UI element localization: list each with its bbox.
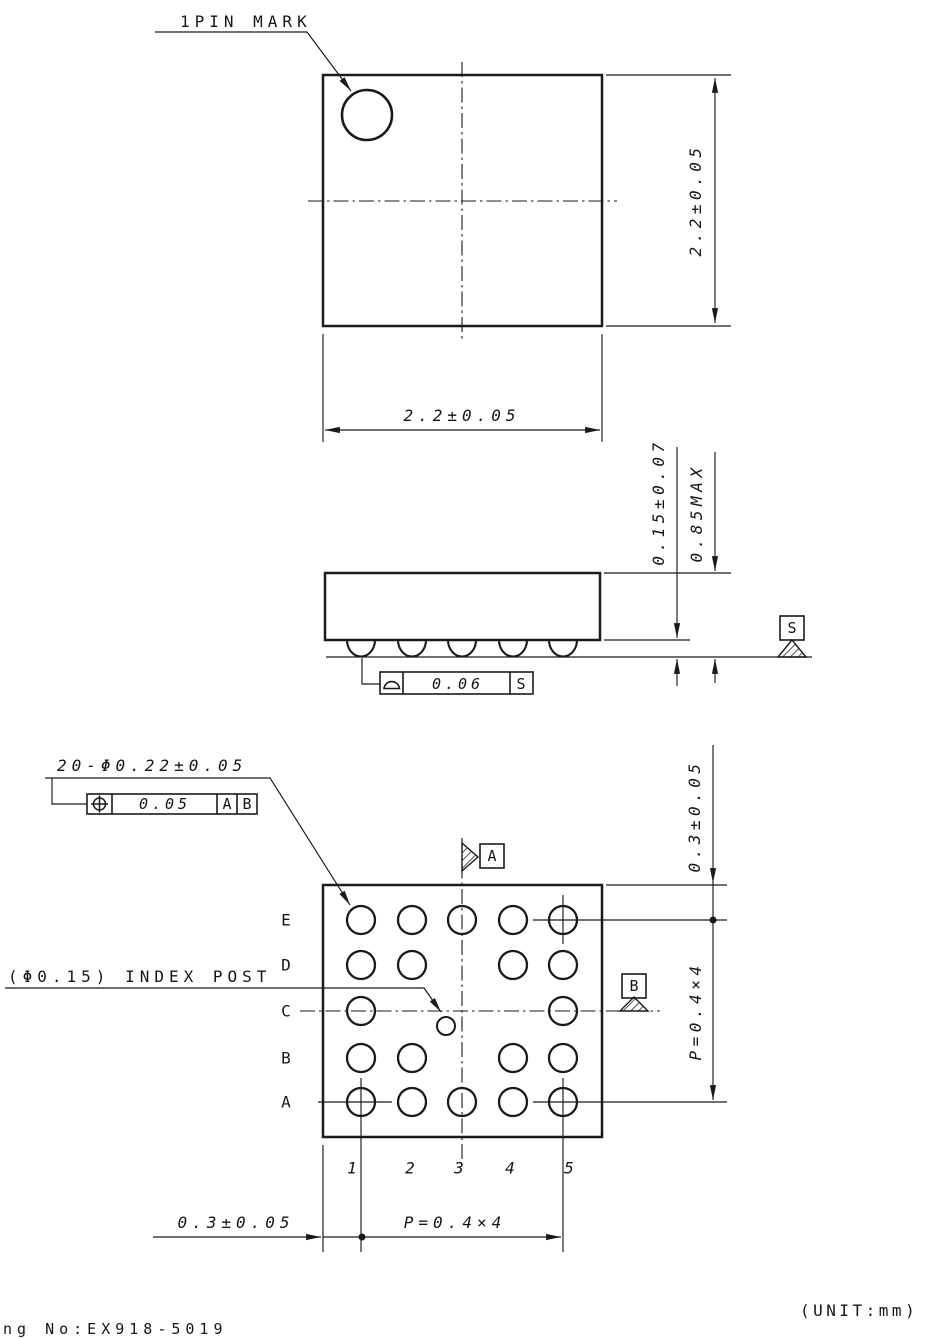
ball-B5 [549,1044,577,1072]
index-post-circle [437,1017,455,1035]
solder-bumps [347,640,577,657]
datum-b-flag: B [620,974,648,1011]
ball-D2 [398,951,426,979]
datum-s-flag: S [778,616,806,657]
unit-note: (UNIT:mm) [800,1301,918,1320]
col-label-1: 1 [347,1159,357,1178]
ball-B1 [347,1044,375,1072]
ball-E4 [499,906,527,934]
coplanarity-fcf: 0.06 S [362,658,533,694]
footer: (UNIT:mm) ng No:EX918-5019 [3,1301,918,1338]
dim-pitch-bottom-text: P=0.4×4 [404,1213,506,1232]
ball-D1 [347,951,375,979]
datum-b-letter: B [629,977,638,995]
dim-standoff-text: 0.15±0.07 [649,438,668,565]
ball-callout-text: 20-Φ0.22±0.05 [57,756,247,775]
top-view: 1PIN MARK 2.2±0.05 2.2±0.05 [155,12,731,442]
dim-max-height: 0.85MAX [687,452,715,683]
pin1-mark-circle [342,90,392,140]
pin-mark-label: 1PIN MARK [180,12,312,31]
row-labels: EDCBA [281,911,291,1112]
col-label-2: 2 [405,1159,415,1178]
row-label-C: C [281,1002,291,1021]
dim-edge-bottom-text: 0.3±0.05 [177,1213,294,1232]
dim-right-side: 0.3±0.05 P=0.4×4 [606,745,727,1100]
profile-of-surface-symbol [384,682,400,689]
ball-callout-leader [45,778,350,905]
datum-a-letter: A [487,847,496,865]
ball-B2 [398,1044,426,1072]
ball-A2 [398,1088,426,1116]
datum-a-flag: A [462,843,504,871]
package-body-side [325,573,600,640]
index-post-label: (Φ0.15) INDEX POST [8,967,271,986]
package-outline-drawing: 1PIN MARK 2.2±0.05 2.2±0.05 0.15±0.07 [0,0,951,1339]
ball-D4 [499,951,527,979]
ball-D5 [549,951,577,979]
dim-max-height-text: 0.85MAX [687,464,706,563]
index-post-callout: (Φ0.15) INDEX POST [5,967,441,1012]
dim-body-width: 2.2±0.05 [323,334,602,442]
dim-bottom: 0.3±0.05 P=0.4×4 [153,1213,561,1241]
ball-A4 [499,1088,527,1116]
coplanarity-datum: S [516,675,525,693]
position-value: 0.05 [139,795,191,813]
dim-body-height-text: 2.2±0.05 [686,143,705,256]
col-label-3: 3 [453,1159,464,1178]
side-view: 0.15±0.07 0.85MAX S 0.06 S [325,438,812,694]
bottom-view: EDCBA 12345 A B 20-Φ0.22±0.05 [5,745,727,1252]
bump-2 [398,640,426,657]
position-datum-a: A [222,795,231,813]
dim-body-width-text: 2.2±0.05 [403,406,520,425]
col-label-4: 4 [505,1159,515,1178]
coplanarity-leader [362,658,380,684]
dim-standoff: 0.15±0.07 [649,438,677,686]
bump-4 [499,640,527,657]
datum-s-letter: S [787,619,796,637]
ball-crosshairs [318,895,727,1252]
dim-body-height: 2.2±0.05 [606,75,731,326]
bump-1 [347,640,375,657]
dim-pitch-right-text: P=0.4×4 [686,962,705,1061]
drawing-sheet: 1PIN MARK 2.2±0.05 2.2±0.05 0.15±0.07 [0,0,951,1339]
pin-mark-leader [155,32,351,91]
ball-callout: 20-Φ0.22±0.05 0.05 A B [45,756,350,905]
true-position-symbol [91,796,108,813]
row-label-A: A [281,1093,291,1112]
row-label-B: B [281,1049,291,1068]
bump-5 [549,640,577,657]
drawing-number: ng No:EX918-5019 [3,1320,228,1338]
row-label-E: E [281,911,291,930]
fcf-connector [52,778,87,804]
ball-E1 [347,906,375,934]
dim-edge-right-text: 0.3±0.05 [685,759,704,872]
coplanarity-value: 0.06 [432,675,484,693]
bump-3 [448,640,476,657]
ball-B4 [499,1044,527,1072]
position-fcf: 0.05 A B [87,794,257,814]
ball-E2 [398,906,426,934]
col-label-5: 5 [564,1159,574,1178]
row-label-D: D [281,956,291,975]
position-datum-b: B [242,795,251,813]
column-labels: 12345 [347,1159,574,1178]
